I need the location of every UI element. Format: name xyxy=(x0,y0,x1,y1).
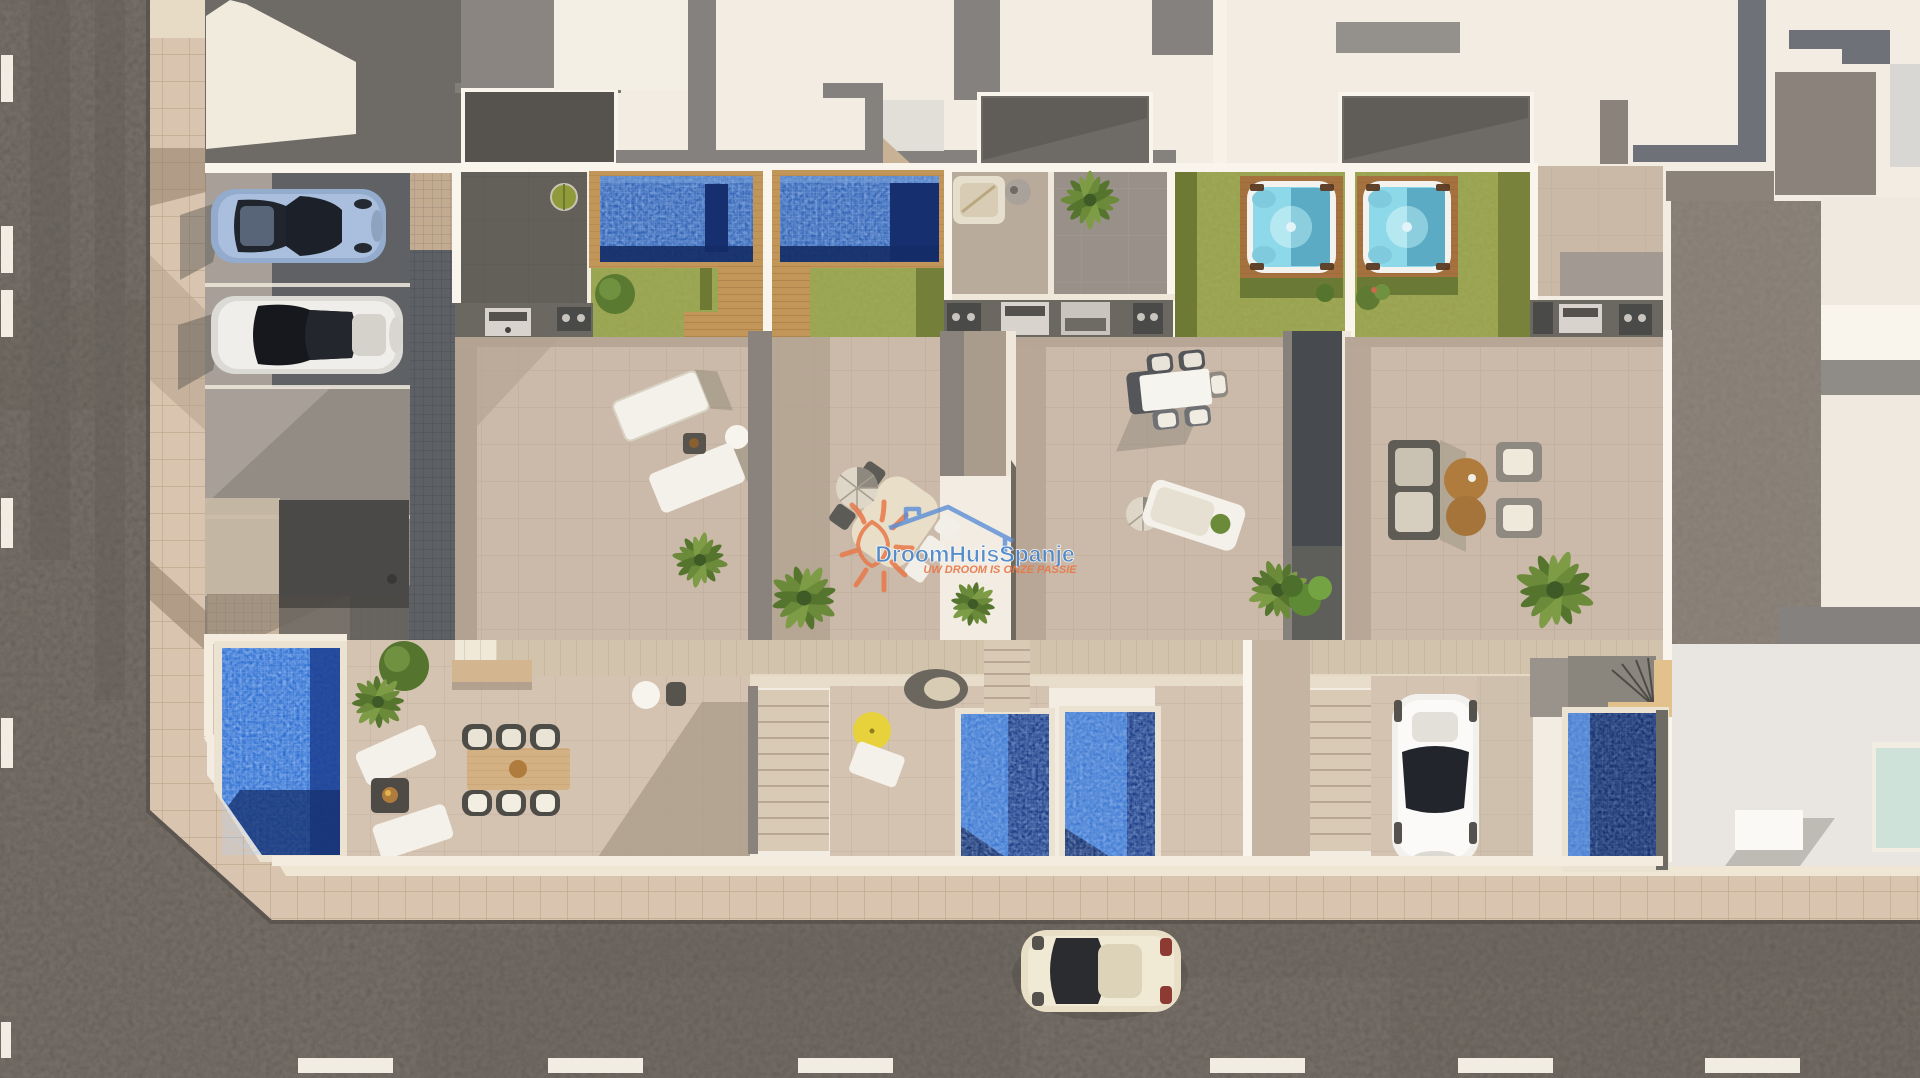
svg-text:UW DROOM IS ONZE PASSIE: UW DROOM IS ONZE PASSIE xyxy=(923,564,1077,576)
